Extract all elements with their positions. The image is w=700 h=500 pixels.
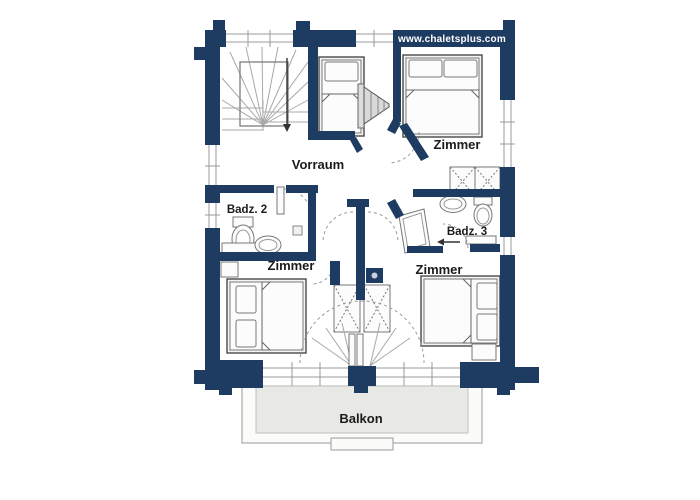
- room-label-vorraum: Vorraum: [292, 157, 345, 172]
- website-label: www.chaletsplus.com: [397, 34, 506, 45]
- room-label-badz2: Badz. 2: [227, 204, 267, 216]
- shower-drain-icon: [293, 226, 302, 235]
- room-label-badz3: Badz. 3: [447, 226, 487, 238]
- room-label-zimmer-bottom-left: Zimmer: [268, 258, 315, 273]
- room-label-zimmer-bottom-right: Zimmer: [416, 262, 463, 277]
- double-bed-top-right-icon: [403, 55, 482, 137]
- balcony-step: [331, 438, 393, 450]
- room-label-balkon: Balkon: [339, 411, 382, 426]
- nightstand: [472, 344, 496, 360]
- sink-icon: [440, 196, 466, 213]
- sink-icon: [255, 236, 281, 254]
- nightstand: [221, 262, 238, 277]
- badz2-door-leaf: [277, 187, 284, 214]
- flue-icon: [366, 268, 383, 283]
- floor-plan-image: www.chaletsplus.com Vorraum Zimmer Badz.…: [0, 0, 700, 500]
- floor-plan-svg: www.chaletsplus.com Vorraum Zimmer Badz.…: [0, 0, 700, 500]
- room-label-zimmer-top-right: Zimmer: [434, 137, 481, 152]
- toilet-icon: [474, 197, 492, 226]
